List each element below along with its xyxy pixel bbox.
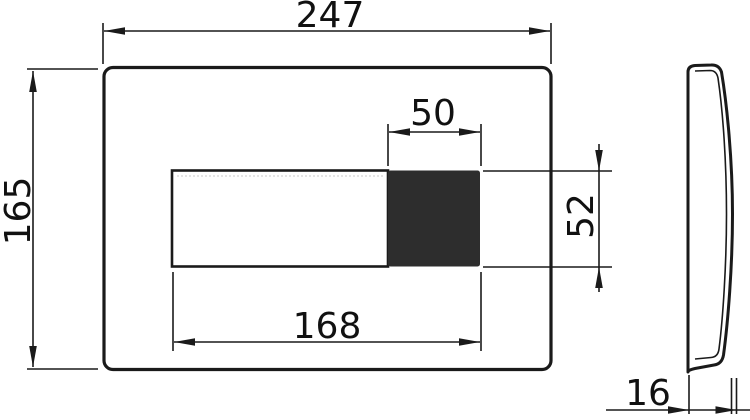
dim-overall-height-label: 165 — [0, 177, 39, 246]
dim-button-width-label: 50 — [410, 93, 456, 134]
side-view — [688, 65, 733, 372]
flush-plate-drawing: 247 165 50 52 — [0, 0, 750, 420]
dim-overall-width-label: 247 — [296, 0, 365, 36]
flush-button — [388, 171, 480, 267]
arrowhead-top — [29, 71, 37, 92]
arrowhead-bottom — [29, 346, 37, 367]
arrowhead-bottom — [595, 267, 603, 288]
button-opening-outline — [172, 171, 388, 267]
dim-depth-label: 16 — [625, 373, 671, 414]
dim-opening-width-label: 168 — [293, 306, 362, 347]
arrowhead-right — [716, 406, 737, 414]
arrowhead-right — [529, 27, 550, 35]
dim-button-height-label: 52 — [561, 193, 602, 239]
dim-overall-width: 247 — [103, 0, 551, 64]
dim-depth: 16 — [606, 373, 750, 414]
arrowhead-top — [595, 150, 603, 171]
arrowhead-left — [668, 406, 689, 414]
dim-overall-height: 165 — [0, 69, 98, 369]
technical-drawing-canvas: 247 165 50 52 — [0, 0, 750, 420]
arrowhead-left — [104, 27, 125, 35]
